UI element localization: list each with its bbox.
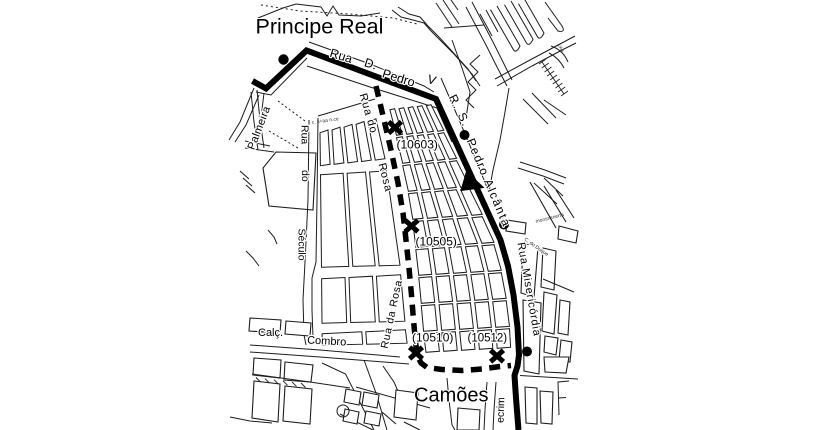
svg-text:Século: Século <box>296 229 308 261</box>
svg-text:ecrim: ecrim <box>495 397 508 423</box>
svg-text:Camões: Camões <box>414 385 488 407</box>
svg-text:Rua: Rua <box>299 125 311 144</box>
svg-text:(10603): (10603) <box>397 138 438 152</box>
svg-text:(10512): (10512) <box>468 333 508 345</box>
svg-text:Principe Real: Principe Real <box>256 15 384 39</box>
svg-text:Combro: Combro <box>307 335 347 349</box>
svg-text:(10505): (10505) <box>416 235 457 249</box>
svg-text:do: do <box>299 170 311 182</box>
svg-text:Calç.: Calç. <box>258 327 283 339</box>
svg-text:(10510): (10510) <box>412 331 453 345</box>
